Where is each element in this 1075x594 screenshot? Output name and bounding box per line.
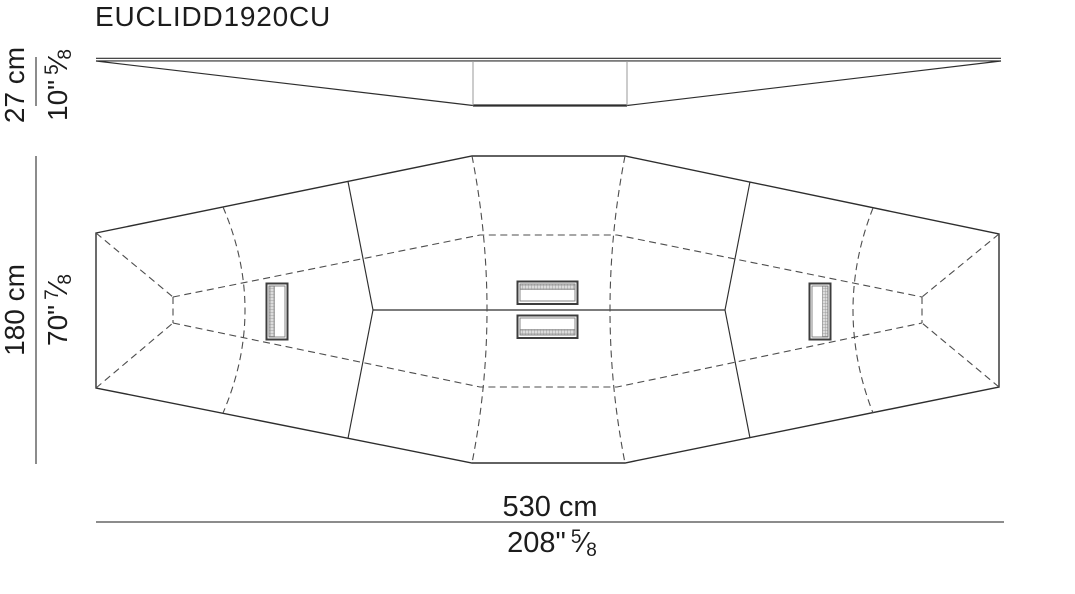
- cable-grommet-left: [267, 284, 288, 340]
- underside-right-slope: [627, 61, 1001, 106]
- width-inch-label: 208"5⁄8: [507, 527, 597, 561]
- cable-grommet-right: [810, 284, 831, 340]
- hidden-edge-line: [96, 323, 173, 388]
- cable-grommet-center-top: [518, 282, 578, 305]
- cable-grommet-center-bottom: [518, 316, 578, 339]
- hidden-edge-line: [96, 233, 173, 297]
- hidden-edge-line: [223, 207, 245, 413]
- hidden-edge-line: [922, 323, 999, 387]
- hidden-edge-line: [853, 208, 873, 413]
- right-facet-crease: [725, 182, 750, 438]
- width-cm-label: 530 cm: [502, 491, 597, 523]
- drawing-canvas: EUCLIDD1920CU: [0, 0, 1075, 594]
- technical-drawing-page: EUCLIDD1920CU: [0, 0, 1075, 594]
- depth-cm-label: 180 cm: [0, 264, 30, 356]
- side-elevation-view: [96, 58, 1001, 105]
- height-inch-label: 10"5⁄8: [42, 49, 76, 121]
- depth-inch-label: 70"7⁄8: [42, 274, 76, 346]
- plan-view-visible-edges: [96, 156, 999, 463]
- product-code-title: EUCLIDD1920CU: [95, 1, 331, 32]
- hidden-edge-line: [922, 234, 999, 297]
- left-facet-crease: [348, 182, 373, 439]
- height-cm-label: 27 cm: [0, 47, 30, 123]
- underside-left-slope: [96, 61, 473, 106]
